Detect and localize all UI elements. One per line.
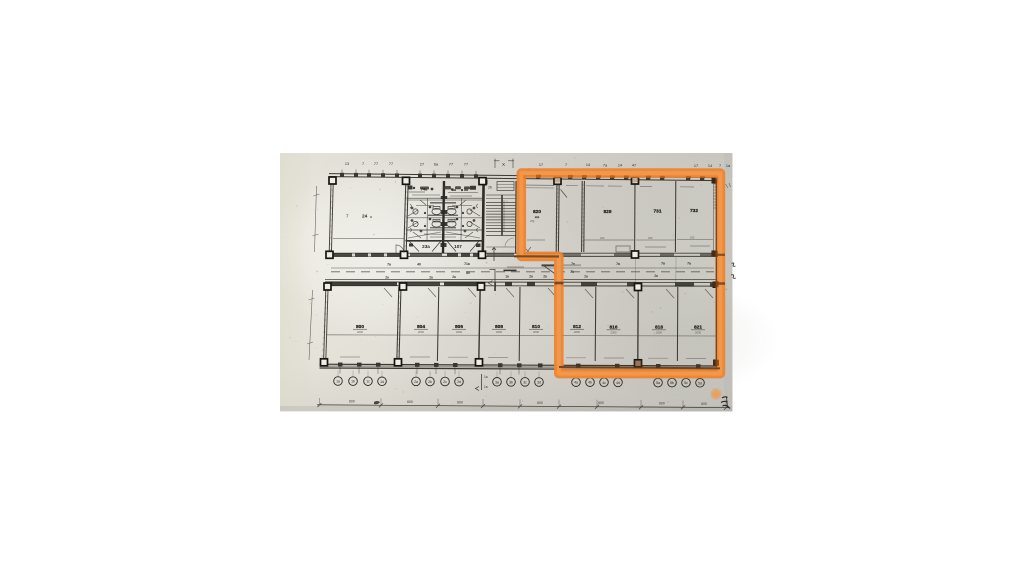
- svg-text:2a: 2a: [385, 275, 389, 279]
- svg-text:600: 600: [537, 401, 543, 405]
- svg-text:260: 260: [648, 236, 653, 240]
- svg-text:1a: 1a: [484, 375, 488, 379]
- svg-text:600: 600: [659, 402, 665, 406]
- svg-text:600: 600: [598, 401, 604, 405]
- svg-text:2000: 2000: [418, 330, 424, 334]
- svg-text:2a: 2a: [584, 274, 588, 278]
- svg-text:2000: 2000: [611, 331, 617, 335]
- svg-text:2a: 2a: [429, 275, 433, 279]
- svg-text:1a: 1a: [505, 275, 509, 279]
- svg-text:2000: 2000: [656, 331, 662, 335]
- svg-text:77: 77: [464, 162, 468, 166]
- svg-text:1d: 1d: [380, 380, 384, 384]
- svg-text:X: X: [502, 162, 505, 167]
- svg-text:14: 14: [586, 163, 590, 167]
- svg-text:2b: 2b: [428, 380, 432, 384]
- svg-text:2a: 2a: [452, 275, 456, 279]
- svg-text:2a: 2a: [414, 380, 418, 384]
- svg-text:77: 77: [389, 162, 393, 166]
- svg-text:4d: 4d: [616, 381, 620, 385]
- svg-text:17: 17: [694, 164, 698, 168]
- svg-text:xxx: xxx: [535, 215, 540, 219]
- svg-text:14: 14: [618, 163, 622, 167]
- svg-text:2a: 2a: [529, 275, 533, 279]
- svg-text:2000: 2000: [496, 330, 502, 334]
- svg-text:1b: 1b: [351, 380, 355, 384]
- svg-text:5b: 5b: [670, 381, 674, 385]
- svg-text:4c: 4c: [602, 381, 606, 385]
- svg-text:7: 7: [719, 164, 721, 168]
- svg-text:17: 17: [539, 163, 543, 167]
- svg-text:24: 24: [362, 214, 368, 220]
- svg-text:3c: 3c: [523, 380, 527, 384]
- svg-text:2000: 2000: [574, 330, 580, 334]
- svg-text:2000: 2000: [357, 330, 363, 334]
- svg-text:3b: 3b: [509, 380, 513, 384]
- svg-text:3a: 3a: [495, 380, 499, 384]
- svg-text:260: 260: [600, 236, 605, 240]
- svg-text:7a: 7a: [387, 262, 391, 266]
- svg-text:600: 600: [407, 400, 413, 404]
- svg-text:7: 7: [362, 162, 364, 166]
- svg-text:2c: 2c: [443, 380, 447, 384]
- svg-text:7a: 7a: [661, 262, 665, 266]
- svg-text:7a: 7a: [616, 262, 620, 266]
- svg-text:71: 71: [570, 270, 574, 274]
- svg-text:71a: 71a: [464, 262, 470, 266]
- svg-text:5a: 5a: [656, 381, 660, 385]
- svg-text:80: 80: [466, 271, 470, 275]
- svg-text:732: 732: [690, 208, 698, 214]
- svg-text:47: 47: [632, 163, 636, 167]
- svg-text:40: 40: [417, 262, 421, 266]
- svg-text:77: 77: [374, 162, 378, 166]
- svg-text:13: 13: [345, 162, 349, 166]
- svg-text:7: 7: [565, 163, 567, 167]
- svg-text:829: 829: [603, 209, 611, 215]
- svg-text:77: 77: [449, 162, 453, 166]
- svg-text:4a: 4a: [574, 381, 578, 385]
- svg-text:1a: 1a: [336, 380, 340, 384]
- svg-text:600: 600: [701, 402, 707, 406]
- svg-text:2000: 2000: [695, 331, 701, 335]
- svg-text:600: 600: [349, 400, 355, 404]
- svg-text:2000: 2000: [533, 330, 539, 334]
- svg-text:5c: 5c: [684, 381, 688, 385]
- svg-text:a: a: [370, 215, 372, 219]
- svg-text:2a: 2a: [543, 275, 547, 279]
- svg-text:4b: 4b: [588, 381, 592, 385]
- svg-text:23a: 23a: [422, 244, 430, 249]
- svg-text:1a: 1a: [484, 385, 488, 389]
- svg-text:107: 107: [454, 244, 462, 249]
- svg-text:1c: 1c: [366, 380, 370, 384]
- svg-text:600: 600: [457, 400, 463, 404]
- svg-text:2000: 2000: [456, 330, 462, 334]
- svg-text:731: 731: [653, 209, 661, 215]
- svg-text:3d: 3d: [537, 381, 541, 385]
- svg-text:2d: 2d: [457, 380, 461, 384]
- svg-text:2a: 2a: [654, 274, 658, 278]
- svg-text:74a: 74a: [421, 187, 428, 191]
- svg-text:5d: 5d: [698, 381, 702, 385]
- svg-text:26: 26: [488, 186, 492, 190]
- svg-text:260: 260: [690, 236, 695, 240]
- svg-text:7a: 7a: [687, 262, 691, 266]
- svg-text:88: 88: [464, 188, 468, 192]
- svg-text:14: 14: [708, 164, 712, 168]
- svg-text:27: 27: [420, 162, 424, 166]
